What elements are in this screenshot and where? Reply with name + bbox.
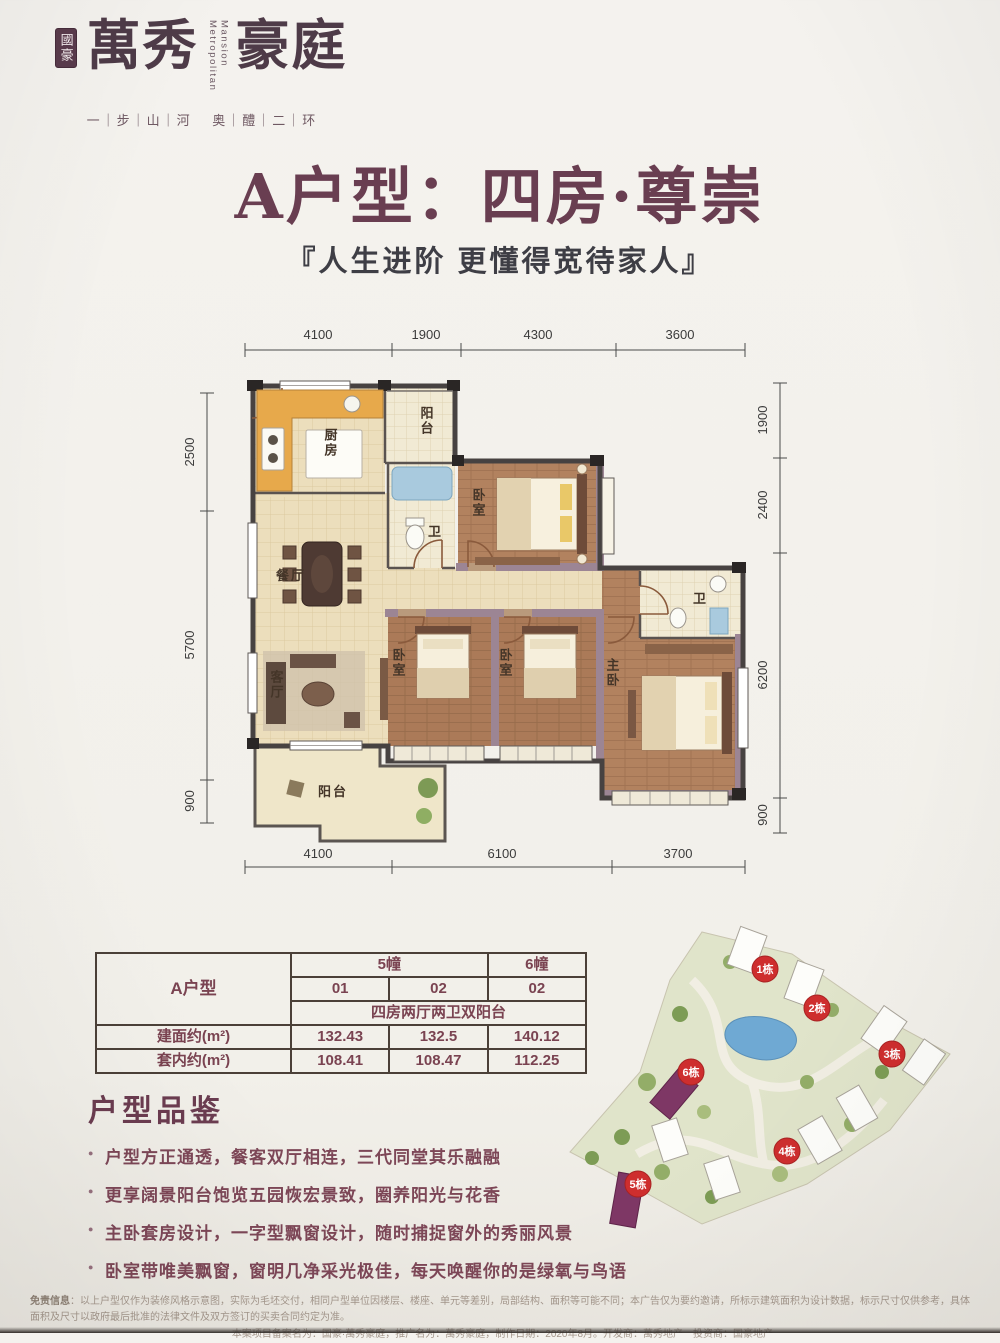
master-pillow-2 [705,716,717,744]
bedroom3-blanket [524,668,576,698]
corner-bedroom-top-left [452,455,464,466]
master-blanket [642,676,676,750]
corner-kitchen-balcony [378,380,391,391]
dim-line-bottom [245,860,745,874]
brand-logo-column: 萬 秀 Metropolitan Mansion 豪 庭 一｜步｜山｜河 奥｜醴… [87,16,348,129]
dim-top-2: 1900 [412,327,441,342]
corner-bath2-right [732,562,746,573]
cell-unit-02a: 02 [389,977,487,1001]
badge-building-1: 1栋 [752,956,778,982]
label-bath2: 卫 [693,591,708,606]
gap-bedroom3 [504,609,532,617]
living-window [248,653,257,713]
disclaimer-text-1: ：以上户型仅作为装修风格示意图，实际为毛坯交付，相同户型单位因楼层、楼座、单元等… [30,1296,970,1323]
dim-top-4: 3600 [666,327,695,342]
top-bedroom-pillow-2 [560,516,572,542]
corner-top-left [247,380,263,391]
cell-type-label: A户型 [96,953,291,1025]
tree [585,1151,599,1165]
badge-text: 6栋 [682,1065,699,1079]
cell-build-area-1: 132.43 [291,1025,389,1049]
bath2-shower [710,608,728,634]
top-bedroom-blanket [497,478,531,550]
living-armchair [344,712,360,728]
tree [672,1006,688,1022]
cell-inner-area-1: 108.41 [291,1049,389,1073]
spec-table: A户型 5幢 6幢 01 02 02 四房两厅两卫双阳台 建面约(m²) 132… [95,952,587,1074]
corner-master-bottom-right [732,788,746,800]
top-bedroom-nightstand-1 [577,464,587,474]
badge-building-3: 3栋 [879,1041,905,1067]
gap-bedroom2 [398,609,426,617]
suite-corridor-floor [602,568,640,638]
label-top-bedroom: 卧室 [471,488,486,518]
wall-bedroom-divider [491,613,499,746]
cell-inner-area-label: 套内约(m²) [96,1049,291,1073]
dining-chair [283,546,296,559]
bedroom3-pillow [530,639,570,649]
photo-bottom-edge [0,1327,1000,1333]
cell-block-5: 5幢 [291,953,488,977]
dim-right-1: 1900 [755,406,770,435]
master-bench [628,690,636,738]
logo-english: Metropolitan Mansion [207,20,230,106]
master-side-window [738,668,748,748]
corner-balcony-right [447,380,460,391]
badge-text: 3栋 [883,1047,900,1061]
living-sofa-chaise [290,654,336,668]
logo-char-1: 萬 [87,16,143,75]
cell-inner-area-2: 108.47 [389,1049,487,1073]
master-pillow-1 [705,682,717,710]
table-row: A户型 5幢 6幢 [96,953,586,977]
dim-bottom-2: 6100 [488,846,517,861]
label-kitchen: 厨房 [323,428,338,458]
dim-right-3: 6200 [755,661,770,690]
kitchen-stove [262,428,284,470]
tree [654,1164,670,1180]
tree [772,1166,788,1182]
top-bedroom-pillow-1 [560,484,572,510]
badge-text: 5栋 [629,1177,646,1191]
page-subtitle: 『人生进阶 更懂得宽待家人』 [0,238,1000,280]
dining-chair [348,546,361,559]
dim-bottom-1: 4100 [304,846,333,861]
table-row: 套内约(m²) 108.41 108.47 112.25 [96,1049,586,1073]
label-bedroom2: 卧室 [391,648,406,678]
label-master: 主卧 [605,657,620,688]
feature-item: 卧室带唯美飘窗，窗明几净采光极佳，每天唤醒你的是绿氧与鸟语 [88,1257,688,1282]
badge-building-5: 5栋 [625,1171,651,1197]
stove-burner-2 [268,453,278,463]
living-coffee-table [302,682,334,706]
label-bedroom3: 卧室 [498,648,513,678]
page-title: A户型：四房·尊崇 [0,146,1000,236]
cell-build-area-2: 132.5 [389,1025,487,1049]
label-dining: 餐厅 [275,568,306,583]
top-bedroom-bay-window [602,478,614,554]
logo-english-word-2: Mansion [218,20,229,106]
label-top-balcony: 阳台 [419,406,434,436]
dim-left-3: 900 [182,790,197,812]
flyer-page: 國豪 萬 秀 Metropolitan Mansion 豪 庭 一｜步｜山｜河 … [0,0,1000,1333]
top-bedroom-nightstand-2 [577,554,587,564]
logo-char-2: 秀 [143,16,199,75]
tree [800,1075,814,1089]
living-tv-cabinet [380,658,388,720]
bath1-toilet [406,525,424,549]
label-bath1: 卫 [428,524,443,539]
stove-burner-1 [268,435,278,445]
corner-living-bottom-left [247,738,259,749]
disclaimer-line-1: 免责信息：以上户型仅作为装修风格示意图，实际为毛坯交付，相同户型单位因楼层、楼座… [30,1294,975,1326]
badge-text: 2栋 [808,1001,825,1015]
label-bottom-balcony: 阳台 [318,784,348,799]
bedroom2-blanket [417,668,469,698]
label-living: 客厅 [269,669,284,700]
unit-spec-table: A户型 5幢 6幢 01 02 02 四房两厅两卫双阳台 建面约(m²) 132… [95,952,587,1074]
disclaimer: 免责信息：以上户型仅作为装修风格示意图，实际为毛坯交付，相同户型单位因楼层、楼座… [30,1294,975,1343]
dim-line-right [773,383,787,833]
tree [875,1065,889,1079]
cell-layout-desc: 四房两厅两卫双阳台 [291,1001,586,1025]
site-map: 1栋 2栋 3栋 4栋 5栋 6栋 [552,922,1000,1240]
bath2-toilet [670,608,686,628]
brand-logo-row: 萬 秀 Metropolitan Mansion 豪 庭 [87,16,348,106]
dim-top-1: 4100 [304,327,333,342]
dim-bottom-3: 3700 [664,846,693,861]
badge-building-6: 6栋 [678,1059,704,1085]
kitchen-sink [344,396,360,412]
brand-seal: 國豪 [55,28,77,68]
corner-bedroom-top-right [590,455,604,466]
dining-table-center [311,555,333,593]
bath1-tub [392,467,452,500]
brand-tagline: 一｜步｜山｜河 奥｜醴｜二｜环 [87,110,348,129]
floorplan-diagram: 厨房 阳台 卫 卧室 餐厅 客厅 卧室 卧室 主卧 卫 阳台 4100 1900… [130,318,870,898]
bedroom2-headboard [415,626,471,634]
wall-bedroom3-right [596,613,604,763]
dining-chair [348,590,361,603]
dim-line-left [200,393,214,823]
cell-unit-01: 01 [291,977,389,1001]
dim-line-top [245,343,745,357]
badge-building-4: 4栋 [774,1138,800,1164]
balcony-plant-1 [418,778,438,798]
logo-english-word-1: Metropolitan [207,20,218,106]
dim-left-1: 2500 [182,438,197,467]
dining-chair [283,590,296,603]
bedroom3-headboard [522,626,578,634]
bath2-sink [710,576,726,592]
top-bedroom-dresser [475,557,560,565]
bedroom2-bay-window [394,746,484,761]
top-bedroom-headboard [577,474,587,554]
dim-top-3: 4300 [524,327,553,342]
badge-building-2: 2栋 [804,995,830,1021]
dim-left-2: 5700 [182,631,197,660]
logo-char-3: 豪 [235,16,291,75]
tree [638,1073,656,1091]
tree [614,1129,630,1145]
brand-logo: 國豪 萬 秀 Metropolitan Mansion 豪 庭 一｜步｜山｜河 … [55,16,361,129]
master-wardrobe [645,644,733,654]
disclaimer-label: 免责信息 [30,1296,70,1307]
tree [697,1105,711,1119]
logo-char-4: 庭 [291,16,347,75]
hall-floor [388,568,602,613]
badge-text: 1栋 [756,962,773,976]
bedroom3-bay-window [500,746,592,761]
balcony-plant-2 [416,808,432,824]
badge-text: 4栋 [778,1144,795,1158]
dining-chair [348,568,361,581]
dining-window [248,523,257,598]
bedroom2-pillow [423,639,463,649]
dim-right-2: 2400 [755,491,770,520]
dim-right-4: 900 [755,804,770,826]
cell-build-area-label: 建面约(m²) [96,1025,291,1049]
master-headboard [722,672,732,754]
table-row: 建面约(m²) 132.43 132.5 140.12 [96,1025,586,1049]
